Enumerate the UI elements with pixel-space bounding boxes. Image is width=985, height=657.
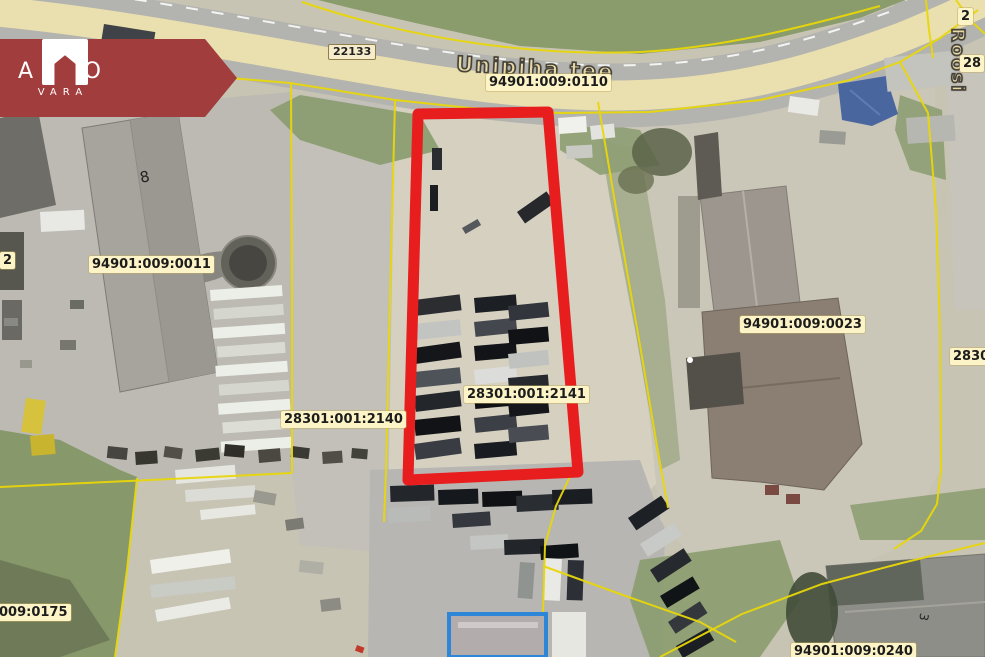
parcel-label-0023: 94901:009:0023 bbox=[740, 316, 865, 333]
parcel-label-2140: 28301:001:2140 bbox=[281, 411, 406, 428]
brand-name-secondary: VARA bbox=[18, 87, 108, 98]
parcel-label-0110: 94901:009:0110 bbox=[486, 74, 611, 91]
arco-vara-banner: ARCO VARA bbox=[0, 39, 237, 117]
aerial-map-viewport: Unipiha tee Roosi 22133 94901:009:0110 9… bbox=[0, 0, 985, 657]
parcel-label-0240: 94901:009:0240 bbox=[791, 643, 916, 657]
parcel-label-2-top-clipped: 2 bbox=[958, 8, 973, 25]
parcel-label-2830-clipped: 2830 bbox=[950, 348, 985, 365]
parcel-label-2141: 28301:001:2141 bbox=[464, 386, 589, 403]
building-number-3: 3 bbox=[916, 612, 931, 622]
building-number-8: 8 bbox=[138, 167, 151, 187]
parcel-label-28-clipped: 28 bbox=[960, 55, 984, 72]
parcel-label-0175: 009:0175 bbox=[0, 604, 71, 621]
arco-vara-logo-icon bbox=[42, 39, 88, 85]
parcel-label-0011: 94901:009:0011 bbox=[89, 256, 214, 273]
road-number-label: 22133 bbox=[328, 44, 376, 60]
parcel-label-2-left-clipped: 2 bbox=[0, 252, 15, 269]
